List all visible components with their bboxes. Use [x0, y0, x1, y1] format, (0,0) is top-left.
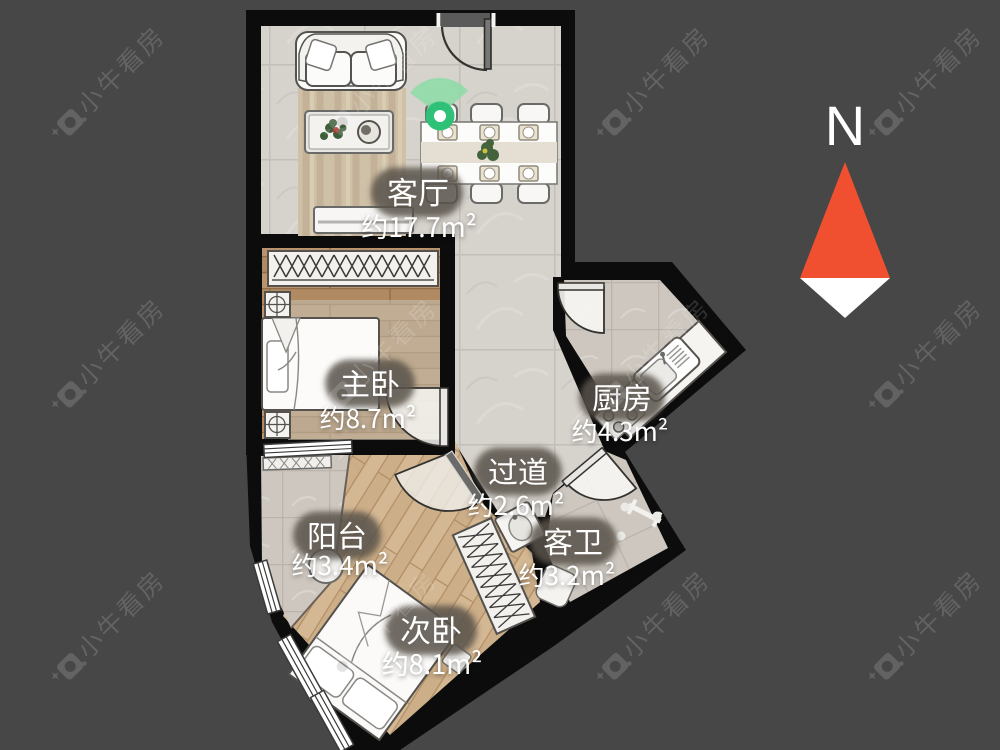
svg-text:N: N: [825, 94, 865, 157]
